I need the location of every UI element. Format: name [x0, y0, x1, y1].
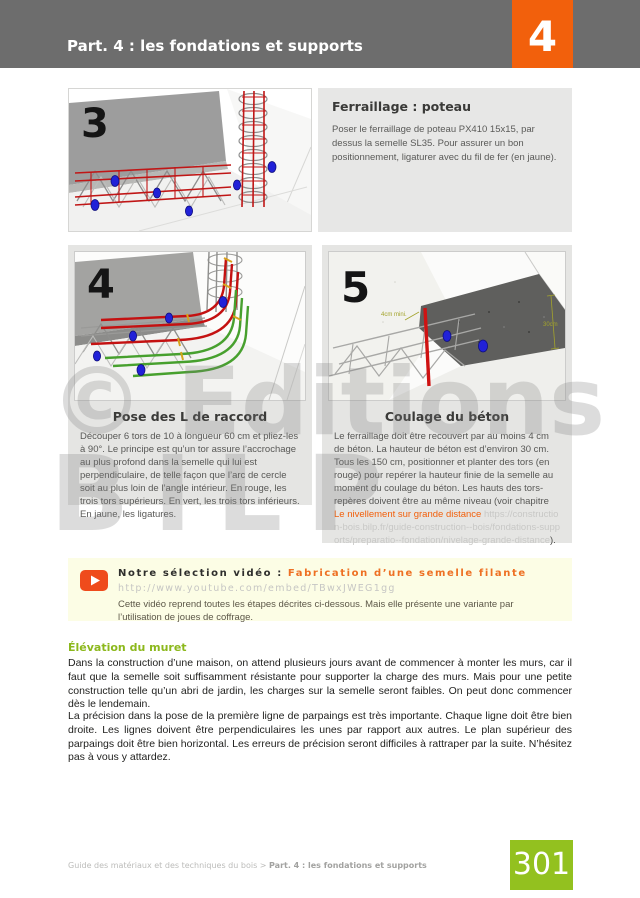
section-heading: Élévation du muret [68, 641, 187, 654]
step5-panel: 4cm mini. 30cm 5 Coulage du béton Le fer… [322, 245, 572, 543]
video-heading: Notre sélection vidéo : Fabrication d’un… [118, 568, 527, 579]
book-page: Part. 4 : les fondations et supports 4 [0, 0, 640, 898]
step4-illustration: 4 [74, 251, 306, 401]
page-title: Part. 4 : les fondations et supports [67, 37, 363, 55]
header-bar: Part. 4 : les fondations et supports 4 [0, 0, 640, 68]
step3-panel: Ferraillage : poteau Poser le ferraillag… [318, 88, 572, 232]
step4-caption: Pose des L de raccord [68, 409, 312, 424]
step3-figure: 3 [68, 88, 312, 232]
step5-text-before: Le ferraillage doit être recouvert par a… [334, 431, 553, 507]
chapter-link[interactable]: Le nivellement sur grande distance [334, 509, 481, 520]
video-description: Cette vidéo reprend toutes les étapes dé… [118, 599, 550, 624]
step3-number: 3 [81, 101, 109, 147]
step5-caption: Coulage du béton [322, 409, 572, 424]
step4-panel: 4 Pose des L de raccord Découper 6 tors … [68, 245, 312, 505]
height-dimension-label: 30cm [543, 322, 558, 328]
chapter-number-badge: 4 [512, 0, 573, 68]
cover-dimension-label: 4cm mini. [381, 312, 407, 318]
step5-number: 5 [341, 263, 370, 312]
video-title-link[interactable]: Fabrication d’une semelle filante [288, 568, 527, 579]
youtube-play-icon[interactable] [80, 570, 108, 591]
step3-illustration: 3 [69, 89, 311, 231]
paragraph-1: Dans la construction d’une maison, on at… [68, 657, 572, 712]
video-url-link[interactable]: http://www.youtube.com/embed/TBwxJWEG1gg [118, 583, 396, 594]
video-label: Notre sélection vidéo : [118, 568, 288, 579]
breadcrumb-root: Guide des matériaux et des techniques du… [68, 861, 269, 870]
step5-illustration: 4cm mini. 30cm 5 [328, 251, 566, 401]
step4-text: Découper 6 tors de 10 à longueur 60 cm e… [68, 430, 312, 521]
chapter-number: 4 [528, 16, 557, 58]
breadcrumb: Guide des matériaux et des techniques du… [68, 861, 427, 870]
video-selection-box: Notre sélection vidéo : Fabrication d’un… [68, 558, 572, 621]
step5-text-suffix: ). [550, 535, 556, 546]
paragraph-2: La précision dans la pose de la première… [68, 710, 572, 765]
step4-number: 4 [87, 262, 115, 308]
step3-text: Poser le ferraillage de poteau PX410 15x… [332, 123, 558, 165]
step3-title: Ferraillage : poteau [332, 99, 558, 114]
page-number: 301 [513, 850, 570, 880]
step5-text: Le ferraillage doit être recouvert par a… [322, 430, 572, 547]
breadcrumb-section: Part. 4 : les fondations et supports [269, 861, 427, 870]
page-number-badge: 301 [510, 840, 573, 890]
